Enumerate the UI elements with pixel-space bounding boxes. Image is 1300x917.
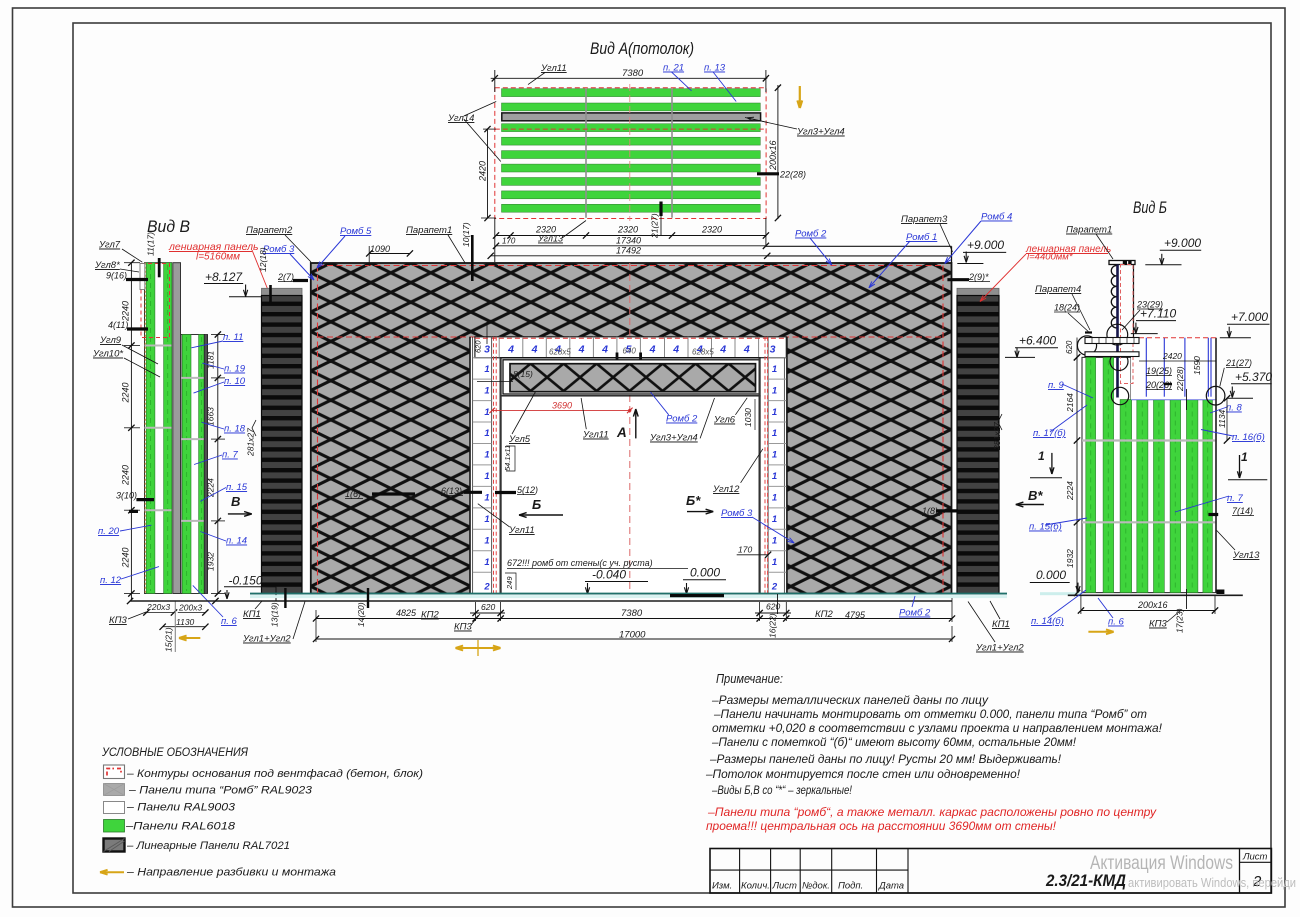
svg-text:В*: В* [1028, 488, 1043, 503]
svg-text:Угл5: Угл5 [508, 434, 531, 445]
svg-text:КП3: КП3 [109, 615, 127, 626]
svg-text:КП1: КП1 [243, 609, 261, 620]
svg-text:п. 21: п. 21 [663, 63, 684, 74]
svg-text:17492: 17492 [616, 245, 641, 255]
svg-text:1: 1 [484, 536, 489, 547]
svg-text:–Размеры металлических панелей: –Размеры металлических панелей даны по л… [711, 693, 989, 707]
svg-text:Угл11: Угл11 [582, 430, 609, 441]
svg-text:17000: 17000 [619, 629, 646, 640]
svg-text:–Панели с пометкой “(б)“ имеют: –Панели с пометкой “(б)“ имеют высоту 60… [711, 735, 1077, 749]
svg-text:10(17): 10(17) [461, 222, 471, 247]
svg-text:п. 19: п. 19 [224, 364, 246, 375]
svg-text:1(6): 1(6) [345, 489, 361, 499]
svg-text:КП3: КП3 [454, 622, 472, 633]
svg-text:+7.110: +7.110 [1140, 307, 1176, 321]
svg-text:Парапет2: Парапет2 [246, 225, 293, 236]
svg-text:Угл14: Угл14 [447, 113, 474, 124]
svg-text:4: 4 [578, 344, 585, 356]
svg-text:19(25): 19(25) [1146, 366, 1172, 376]
svg-text:– Контуры основания под вентф: – Контуры основания под вентфасад (бетон… [126, 768, 423, 780]
svg-text:22(28): 22(28) [1175, 366, 1185, 392]
svg-text:Угл13: Угл13 [1232, 550, 1260, 561]
svg-text:п. 7: п. 7 [222, 450, 239, 461]
svg-text:Угл11: Угл11 [540, 63, 567, 74]
svg-text:Изм.: Изм. [712, 881, 732, 892]
svg-text:14(20): 14(20) [356, 602, 366, 627]
svg-text:А: А [616, 425, 627, 440]
svg-text:Угл13: Угл13 [537, 234, 563, 244]
svg-text:4795: 4795 [845, 610, 866, 620]
svg-text:Ромб 3: Ромб 3 [721, 508, 753, 519]
svg-text:1: 1 [484, 493, 489, 504]
svg-text:отметки +0,020 в соответствии: отметки +0,020 в соответствии с узлами п… [712, 721, 1163, 735]
svg-text:2320: 2320 [701, 225, 722, 235]
svg-text:КП3: КП3 [1149, 619, 1167, 630]
svg-text:– Панели типа “Ромб” RAL9023: – Панели типа “Ромб” RAL9023 [128, 785, 313, 797]
svg-text:4: 4 [672, 344, 679, 356]
svg-text:2240: 2240 [121, 465, 131, 486]
svg-text:1090: 1090 [370, 244, 390, 254]
svg-text:7380: 7380 [621, 608, 643, 619]
svg-text:1: 1 [772, 514, 777, 525]
svg-text:Примечание:: Примечание: [716, 672, 783, 686]
svg-text:4: 4 [719, 344, 726, 356]
svg-text:п. 13: п. 13 [704, 63, 726, 74]
svg-text:l=5160мм: l=5160мм [196, 252, 240, 263]
svg-text:п. 10: п. 10 [224, 376, 246, 387]
svg-text:проема!!! центральная ось на р: проема!!! центральная ось на расстоянии … [706, 819, 1057, 833]
svg-text:11(17): 11(17) [146, 232, 156, 256]
svg-text:22(28): 22(28) [779, 170, 806, 180]
svg-text:Активация Windows: Активация Windows [1090, 853, 1233, 874]
svg-text:Б*: Б* [686, 493, 701, 508]
svg-text:1663: 1663 [206, 407, 216, 426]
svg-text:13(19): 13(19) [270, 602, 280, 627]
svg-text:1590: 1590 [1192, 356, 1202, 375]
svg-text:Подп.: Подп. [838, 881, 863, 892]
svg-text:620: 620 [766, 602, 780, 612]
svg-text:2: 2 [483, 582, 490, 593]
svg-text:21(27): 21(27) [1225, 358, 1252, 368]
svg-text:3(10): 3(10) [116, 491, 137, 501]
svg-text:3690: 3690 [552, 401, 572, 411]
svg-text:1: 1 [1038, 449, 1045, 463]
svg-text:–Панели RAL6018: –Панели RAL6018 [125, 821, 236, 833]
svg-text:54.1x11: 54.1x11 [503, 445, 512, 471]
svg-text:Угл9: Угл9 [99, 335, 122, 346]
svg-text:5(12): 5(12) [517, 485, 538, 495]
svg-text:Угл7: Угл7 [98, 240, 121, 251]
svg-text:п. 14: п. 14 [226, 536, 247, 547]
svg-text:1: 1 [1241, 450, 1248, 464]
svg-text:Угл8*: Угл8* [94, 260, 120, 271]
svg-text:КП2: КП2 [815, 609, 833, 620]
svg-text:-0.040: -0.040 [592, 568, 626, 582]
svg-text:4: 4 [507, 344, 514, 356]
svg-text:Парапет1: Парапет1 [406, 225, 452, 236]
svg-text:1: 1 [772, 471, 777, 482]
svg-text:п. 6: п. 6 [221, 616, 238, 627]
svg-text:п. 12: п. 12 [100, 575, 122, 586]
svg-text:УСЛОВНЫЕ ОБОЗНАЧЕНИЯ: УСЛОВНЫЕ ОБОЗНАЧЕНИЯ [101, 747, 248, 759]
svg-text:1: 1 [484, 385, 489, 396]
svg-text:200x16: 200x16 [768, 140, 778, 171]
svg-text:4: 4 [649, 344, 656, 356]
svg-text:170: 170 [738, 545, 752, 555]
svg-text:2(9)*: 2(9)* [968, 272, 989, 282]
svg-text:Ромб 1: Ромб 1 [906, 232, 937, 243]
svg-text:2164: 2164 [1065, 393, 1075, 413]
svg-text:Вид А(потолок): Вид А(потолок) [590, 40, 694, 58]
svg-text:п. 15: п. 15 [226, 482, 248, 493]
svg-text:п. 16(б): п. 16(б) [1232, 432, 1265, 443]
svg-text:Парапет3: Парапет3 [901, 214, 948, 225]
svg-text:1932: 1932 [206, 552, 216, 571]
svg-text:КП1: КП1 [992, 619, 1010, 630]
svg-text:1130: 1130 [176, 617, 195, 627]
svg-text:16(22): 16(22) [768, 613, 778, 638]
svg-text:Парапет1: Парапет1 [1066, 225, 1112, 236]
svg-text:+7.000: +7.000 [1231, 310, 1268, 324]
svg-text:В: В [231, 494, 240, 509]
svg-text:Вид Б: Вид Б [1133, 199, 1167, 217]
svg-text:2224: 2224 [1065, 481, 1075, 501]
svg-text:21(27): 21(27) [650, 213, 660, 239]
svg-text:1: 1 [772, 364, 777, 375]
svg-text:+6.400: +6.400 [1019, 334, 1056, 348]
svg-text:170: 170 [502, 237, 516, 246]
svg-text:–Потолок монтируется после сте: –Потолок монтируется после стен или одно… [705, 767, 1021, 781]
svg-text:18(24): 18(24) [1054, 303, 1080, 313]
svg-text:6(13): 6(13) [441, 486, 462, 496]
svg-text:– Панели RAL9003: – Панели RAL9003 [126, 802, 236, 814]
svg-text:4: 4 [743, 344, 750, 356]
svg-text:1: 1 [484, 557, 489, 568]
svg-text:1: 1 [484, 364, 489, 375]
svg-text:4: 4 [601, 344, 608, 356]
svg-text:1: 1 [772, 493, 777, 504]
svg-text:2(7): 2(7) [277, 272, 294, 282]
svg-text:Угл6: Угл6 [713, 415, 736, 426]
svg-text:Ромб 2: Ромб 2 [795, 229, 827, 240]
svg-text:1: 1 [772, 557, 777, 568]
svg-text:п. 18: п. 18 [224, 424, 246, 435]
svg-text:4(11): 4(11) [108, 320, 128, 330]
svg-text:2: 2 [771, 582, 778, 593]
svg-text:Угл1+Угл2: Угл1+Угл2 [242, 634, 291, 645]
svg-text:1: 1 [772, 385, 777, 396]
svg-text:7(14): 7(14) [1232, 506, 1253, 516]
svg-text:+9.000: +9.000 [1164, 236, 1201, 250]
svg-text:640: 640 [623, 347, 637, 356]
svg-text:249: 249 [505, 576, 514, 590]
svg-text:Угл3+Угл4: Угл3+Угл4 [649, 433, 698, 444]
svg-text:Ромб 4: Ромб 4 [981, 212, 1012, 223]
svg-text:1030: 1030 [743, 408, 753, 427]
svg-text:0.000: 0.000 [1036, 568, 1066, 582]
svg-text:Угл3+Угл4: Угл3+Угл4 [796, 127, 845, 138]
svg-text:17(23): 17(23) [1175, 608, 1185, 633]
svg-text:7380: 7380 [622, 68, 644, 79]
svg-text:-0.150: -0.150 [229, 574, 263, 588]
svg-text:–Размеры панелей даны по лицу!: –Размеры панелей даны по лицу! Русты 20 … [709, 752, 1062, 766]
svg-text:3: 3 [484, 344, 490, 356]
svg-text:п. 6: п. 6 [1108, 617, 1125, 628]
svg-text:200x16: 200x16 [1137, 600, 1168, 610]
svg-text:1: 1 [484, 450, 489, 461]
svg-text:п. 11: п. 11 [223, 332, 243, 343]
svg-text:+8.127: +8.127 [205, 270, 243, 284]
svg-text:9(16): 9(16) [106, 271, 127, 281]
svg-text:1: 1 [772, 536, 777, 547]
svg-text:3: 3 [770, 344, 776, 356]
svg-text:620: 620 [474, 340, 483, 353]
svg-text:Лист: Лист [772, 881, 798, 892]
svg-text:– Направление разбивки и монта: – Направление разбивки и монтажа [126, 867, 336, 879]
svg-text:15(21): 15(21) [164, 627, 174, 652]
svg-text:+5.370: +5.370 [1235, 370, 1272, 384]
svg-text:Колич.: Колич. [741, 881, 770, 892]
svg-text:0.000: 0.000 [690, 566, 720, 580]
svg-text:220x3: 220x3 [146, 602, 170, 612]
svg-text:№док.: №док. [802, 881, 830, 892]
svg-text:2240: 2240 [121, 301, 131, 322]
svg-text:Ромб 2: Ромб 2 [899, 608, 931, 619]
svg-text:– Линеарные Панели RAL7021: – Линеарные Панели RAL7021 [126, 840, 290, 852]
svg-text:1: 1 [772, 450, 777, 461]
svg-text:1(8): 1(8) [922, 506, 938, 516]
svg-text:Ромб 3: Ромб 3 [263, 244, 295, 255]
svg-text:1: 1 [484, 428, 489, 439]
svg-text:п. 20: п. 20 [98, 526, 120, 537]
svg-text:1134: 1134 [1217, 409, 1227, 428]
svg-text:8(15): 8(15) [513, 369, 533, 379]
svg-text:п. 7: п. 7 [1227, 493, 1244, 504]
svg-text:+9.000: +9.000 [967, 238, 1004, 252]
svg-text:1932: 1932 [1065, 549, 1075, 568]
svg-text:Ромб 2: Ромб 2 [666, 414, 698, 425]
svg-text:п. 9: п. 9 [1048, 380, 1065, 391]
svg-text:активировать Windows, перейди: активировать Windows, перейди [1128, 875, 1296, 890]
svg-text:2320: 2320 [617, 225, 638, 235]
svg-text:2224: 2224 [206, 478, 216, 498]
svg-text:КП2: КП2 [421, 610, 439, 621]
svg-text:12(18): 12(18) [258, 247, 268, 272]
svg-text:620: 620 [1065, 340, 1074, 354]
svg-text:17340: 17340 [616, 235, 641, 245]
svg-text:672!!! ромб от стены(с уч. рус: 672!!! ромб от стены(с уч. руста) [507, 558, 653, 568]
svg-text:1: 1 [484, 514, 489, 525]
svg-text:Угл12: Угл12 [712, 484, 740, 495]
svg-text:200x3: 200x3 [178, 603, 202, 613]
svg-text:Угл10*: Угл10* [92, 349, 123, 360]
svg-text:2420: 2420 [478, 161, 488, 182]
svg-text:2420: 2420 [1162, 351, 1182, 361]
svg-text:Угл1+Угл2: Угл1+Угл2 [975, 643, 1024, 654]
svg-text:1: 1 [772, 407, 777, 418]
svg-text:628x5: 628x5 [549, 348, 571, 357]
svg-text:1: 1 [772, 428, 777, 439]
svg-text:1: 1 [484, 407, 489, 418]
svg-text:Дата: Дата [878, 881, 904, 892]
svg-text:Б: Б [532, 497, 541, 512]
svg-text:2240: 2240 [121, 382, 131, 403]
svg-text:2240: 2240 [121, 547, 131, 568]
svg-text:п. 8: п. 8 [1226, 403, 1243, 414]
svg-text:Лист: Лист [1242, 852, 1268, 863]
svg-text:–Виды Б,В со “*“ – зеркальные!: –Виды Б,В со “*“ – зеркальные! [711, 783, 852, 797]
svg-text:п. 14(б): п. 14(б) [1031, 616, 1064, 627]
svg-text:4825: 4825 [396, 608, 417, 618]
svg-text:–Панели типа “ромб“, а также м: –Панели типа “ромб“, а также металл. кар… [707, 805, 1157, 819]
svg-text:Парапет4: Парапет4 [1035, 284, 1081, 295]
svg-text:п. 17(б): п. 17(б) [1033, 428, 1066, 439]
svg-text:1: 1 [484, 471, 489, 482]
svg-text:–Панели начинать монтировать о: –Панели начинать монтировать от отметки … [713, 707, 1147, 721]
svg-text:Угл11: Угл11 [508, 525, 535, 536]
svg-text:620: 620 [481, 602, 495, 612]
svg-text:Ромб 5: Ромб 5 [340, 226, 372, 237]
svg-text:628x5: 628x5 [692, 348, 714, 357]
svg-text:4: 4 [531, 344, 538, 356]
svg-text:l=4400мм*: l=4400мм* [1027, 252, 1073, 263]
